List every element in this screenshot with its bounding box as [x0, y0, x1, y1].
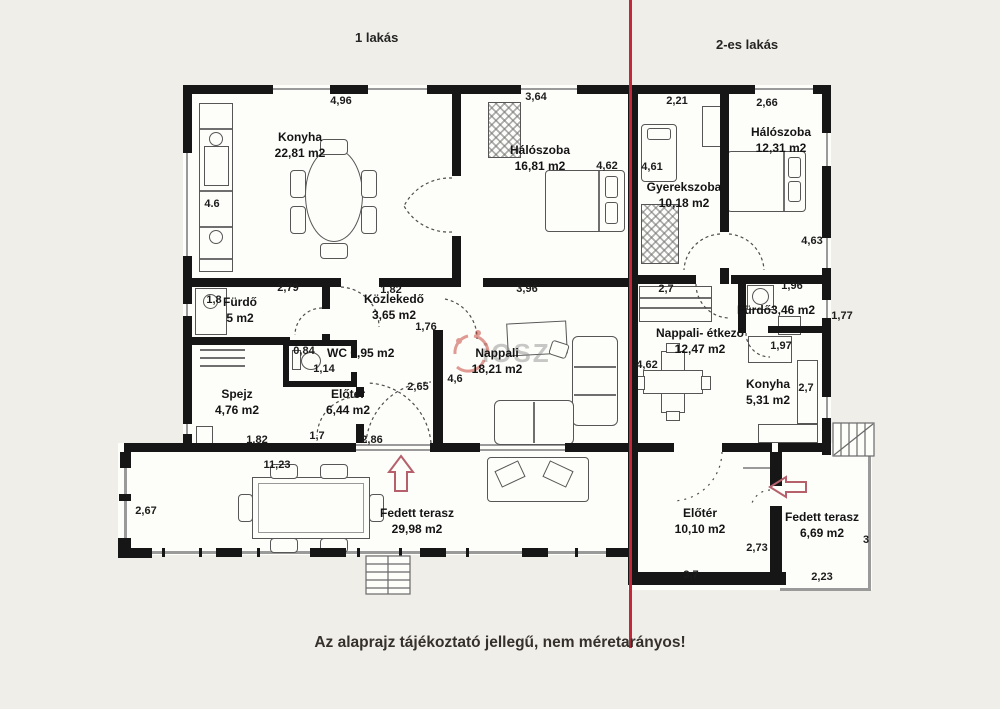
- chair: [238, 494, 253, 522]
- chair: [666, 411, 680, 421]
- wall-segment: [483, 278, 628, 287]
- counter-divider: [200, 190, 232, 192]
- chair: [361, 170, 377, 198]
- chair: [701, 376, 711, 390]
- dimension-label: 1,82: [246, 435, 267, 446]
- daybed: [639, 286, 712, 322]
- dimension-label: 0,84: [293, 346, 314, 357]
- wall-segment: [183, 85, 192, 153]
- dining-table: [305, 148, 363, 242]
- sink-icon: [209, 230, 223, 244]
- wall-segment: [822, 85, 831, 133]
- terrace-table-inner: [258, 483, 364, 533]
- dimension-label: 1,8: [206, 295, 221, 306]
- dimension-label: 3,64: [525, 92, 546, 103]
- sliding-door-line: [356, 449, 430, 451]
- chair: [320, 464, 348, 479]
- apartment2-title: 2-es lakás: [716, 37, 778, 52]
- sofa-cushion-line: [574, 366, 616, 368]
- chair: [320, 243, 348, 259]
- chair: [290, 206, 306, 234]
- terrace-pillar: [606, 548, 630, 557]
- sofa-cushion-line: [574, 394, 616, 396]
- room-label-nappali: Nappali18,21 m2: [472, 346, 523, 377]
- terrace-tick: [257, 548, 260, 557]
- bed-line: [598, 171, 600, 231]
- wall-segment: [720, 268, 729, 284]
- wall-segment: [822, 318, 831, 397]
- apartment1-title: 1 lakás: [355, 30, 398, 45]
- terrace-pillar: [120, 452, 131, 468]
- wall-segment: [452, 236, 461, 287]
- daybed-line: [640, 307, 711, 309]
- wc-wall: [283, 340, 289, 387]
- wall-segment: [183, 337, 290, 345]
- wall-segment: [822, 268, 831, 300]
- dimension-label: 1,77: [831, 311, 852, 322]
- wall-segment: [124, 443, 356, 452]
- dimension-label: 1,82: [380, 285, 401, 296]
- terrace-tick: [575, 548, 578, 557]
- loveseat-divider: [533, 402, 535, 443]
- dimension-label: 1,7: [309, 431, 324, 442]
- dimension-label: 2,65: [407, 382, 428, 393]
- terrace-tick: [199, 548, 202, 557]
- disclaimer-text: Az alaprajz tájékoztató jellegű, nem mér…: [0, 634, 1000, 652]
- boiler-icon: [196, 426, 213, 444]
- pillow: [647, 128, 671, 140]
- dimension-label: 2,7: [658, 284, 673, 295]
- wall-segment: [731, 275, 822, 284]
- floor-plan-canvas: 1 lakás 2-es lakás: [0, 0, 1000, 709]
- room-label-gyerekszoba: Gyerekszoba10,18 m2: [647, 180, 722, 211]
- terrace-tick: [466, 548, 469, 557]
- room-label-konyha1: Konyha22,81 m2: [275, 130, 326, 161]
- wall-segment: [183, 316, 192, 424]
- room-label-eloter1: Előtér6,44 m2: [326, 387, 370, 418]
- dimension-label: 2,73: [746, 543, 767, 554]
- daybed-line: [640, 297, 711, 299]
- terrace-tick: [357, 548, 360, 557]
- room-label-furdo1: Fürdő5 m2: [223, 295, 257, 326]
- dimension-label: 2,67: [135, 506, 156, 517]
- counter-divider: [200, 128, 232, 130]
- terrace-pillar: [420, 548, 446, 557]
- terrace-tick: [399, 548, 402, 557]
- wall-segment: [768, 326, 822, 333]
- room-label-fedett-terasz1: Fedett terasz29,98 m2: [380, 506, 454, 537]
- terrace2-edge-line: [780, 588, 871, 591]
- terrace-pillar: [216, 548, 242, 557]
- terrace-tick: [162, 548, 165, 557]
- room-label-eloter2: Előtér10,10 m2: [675, 506, 726, 537]
- dimension-label: 2,21: [666, 96, 687, 107]
- room-label-kozlekedo: Közlekedő3,65 m2: [364, 292, 424, 323]
- dimension-label: 2,7: [798, 383, 813, 394]
- terrace-pillar: [119, 494, 131, 501]
- dimension-label: 2,66: [756, 98, 777, 109]
- shelf-line: [200, 349, 245, 351]
- dimension-label: 2,79: [277, 283, 298, 294]
- chair: [361, 206, 377, 234]
- wall-segment: [770, 452, 782, 486]
- room-label-fedett-terasz2: Fedett terasz6,69 m2: [785, 510, 859, 541]
- dimension-label: 3,96: [516, 284, 537, 295]
- room-label-wc: WC 0,95 m2: [327, 346, 394, 362]
- terrace-pillar: [310, 548, 346, 557]
- wall-segment: [722, 443, 772, 452]
- dimension-label: 1,14: [313, 364, 334, 375]
- stove-icon: [204, 146, 229, 186]
- pillow: [605, 202, 618, 224]
- sofa: [572, 336, 618, 426]
- shelf-line: [200, 365, 245, 367]
- room-label-haloszoba1: Hálószoba16,81 m2: [510, 143, 570, 174]
- wall-segment: [330, 85, 368, 94]
- dimension-label: 3,7: [683, 570, 698, 581]
- counter-divider: [200, 258, 232, 260]
- terrace-pillar: [118, 548, 152, 558]
- dimension-label: 2,23: [811, 572, 832, 583]
- wall-segment: [770, 506, 782, 572]
- dimension-label: 4,61: [641, 162, 662, 173]
- dimension-label: 3: [863, 535, 869, 546]
- dimension-label: 4,62: [636, 360, 657, 371]
- dimension-label: 4.6: [204, 199, 219, 210]
- wc-wall: [351, 372, 357, 387]
- room-label-konyha2: Konyha5,31 m2: [746, 377, 790, 408]
- kitchen-counter: [758, 424, 818, 443]
- pillow: [788, 157, 801, 178]
- dimension-label: 1,96: [781, 281, 802, 292]
- wardrobe: [641, 204, 679, 264]
- pillow: [605, 176, 618, 198]
- terrace-pillar: [522, 548, 548, 557]
- wall-segment: [778, 443, 831, 452]
- dimension-label: 4,6: [447, 374, 462, 385]
- wall-segment: [452, 94, 461, 176]
- dimension-label: 4,63: [801, 236, 822, 247]
- wall-segment: [822, 166, 831, 238]
- dimension-label: 4,62: [596, 161, 617, 172]
- wall-segment: [638, 443, 674, 452]
- bed-line: [783, 152, 785, 211]
- counter-divider: [200, 226, 232, 228]
- wall-segment: [322, 287, 330, 309]
- dimension-label: 1,76: [415, 322, 436, 333]
- sink-icon: [209, 132, 223, 146]
- dimension-label: 4,96: [330, 96, 351, 107]
- wall-segment: [427, 85, 521, 94]
- dining-table-cross: [643, 370, 703, 394]
- wall-segment: [183, 85, 273, 94]
- terrace2-edge-line: [868, 452, 871, 591]
- dimension-label: 1,97: [770, 341, 791, 352]
- room-label-nappali-etkezo: Nappali- étkező12,47 m2: [656, 326, 744, 357]
- dimension-label: 2,86: [361, 435, 382, 446]
- chair: [290, 170, 306, 198]
- pillow: [788, 181, 801, 202]
- room-label-spejz: Spejz4,76 m2: [215, 387, 259, 418]
- dimension-label: 11,23: [264, 460, 291, 471]
- wall-segment: [183, 278, 341, 287]
- sliding-door-line: [480, 449, 565, 451]
- wall-segment: [433, 330, 443, 452]
- shelf-line: [200, 357, 245, 359]
- wall-segment: [628, 572, 786, 585]
- apartment-divider-red-line: [629, 0, 632, 648]
- room-label-haloszoba2: Hálószoba12,31 m2: [751, 125, 811, 156]
- room-label-furdo2: Fürdő3,46 m2: [737, 303, 815, 319]
- chair: [270, 538, 298, 553]
